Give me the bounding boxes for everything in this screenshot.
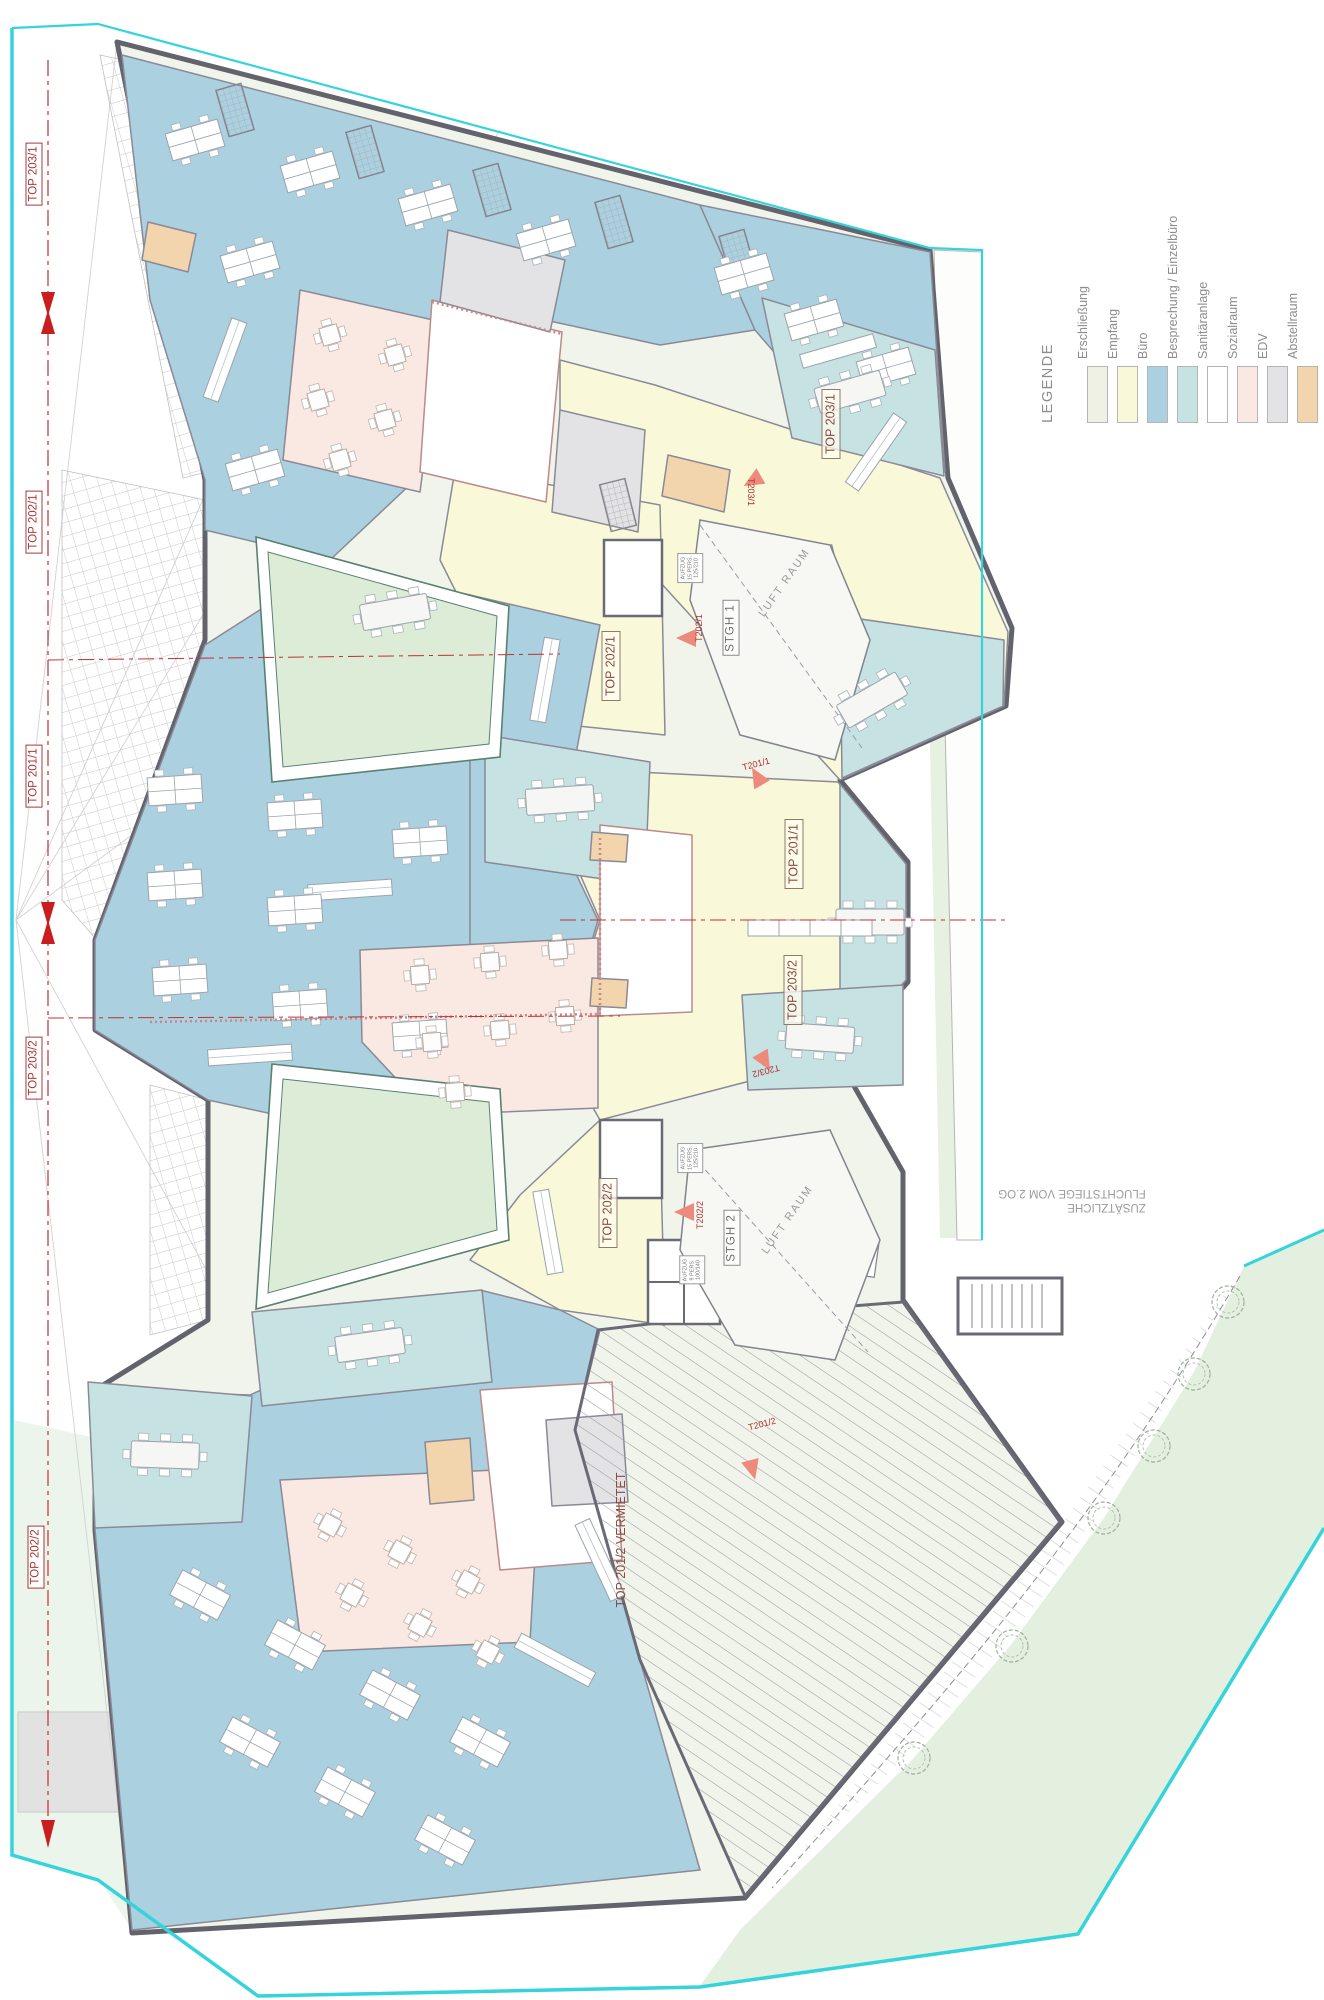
floor-plan-drawing — [0, 0, 1324, 2000]
zone-abstell-4 — [590, 978, 628, 1008]
escape-stair — [958, 1278, 1062, 1334]
floor-plan-sheet: TOP 203/1 TOP 202/1 TOP 201/1 TOP 203/2 … — [0, 0, 1324, 2000]
zone-abstell-3 — [590, 832, 628, 862]
zone-sozial-top — [283, 290, 442, 492]
zone-abstell-5 — [425, 1438, 474, 1504]
zone-sanitaer-top — [420, 300, 562, 502]
